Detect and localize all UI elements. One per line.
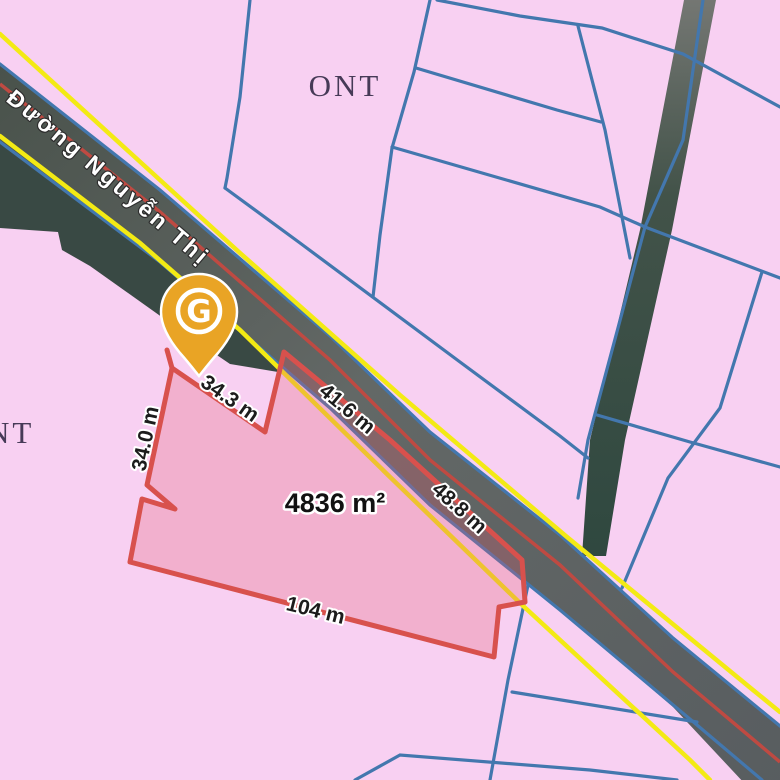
pin-logo-letter: G [186,294,211,330]
map-canvas[interactable]: Đường Nguyễn Thị ONT ONT 34.3 m 41.6 m 4… [0,0,780,780]
zone-label-ont: ONT [309,68,382,103]
map-viewport[interactable]: Đường Nguyễn Thị ONT ONT 34.3 m 41.6 m 4… [0,0,780,780]
zone-label-ont-partial: ONT [0,415,34,450]
parcel-area-label: 4836 m² [285,488,386,518]
